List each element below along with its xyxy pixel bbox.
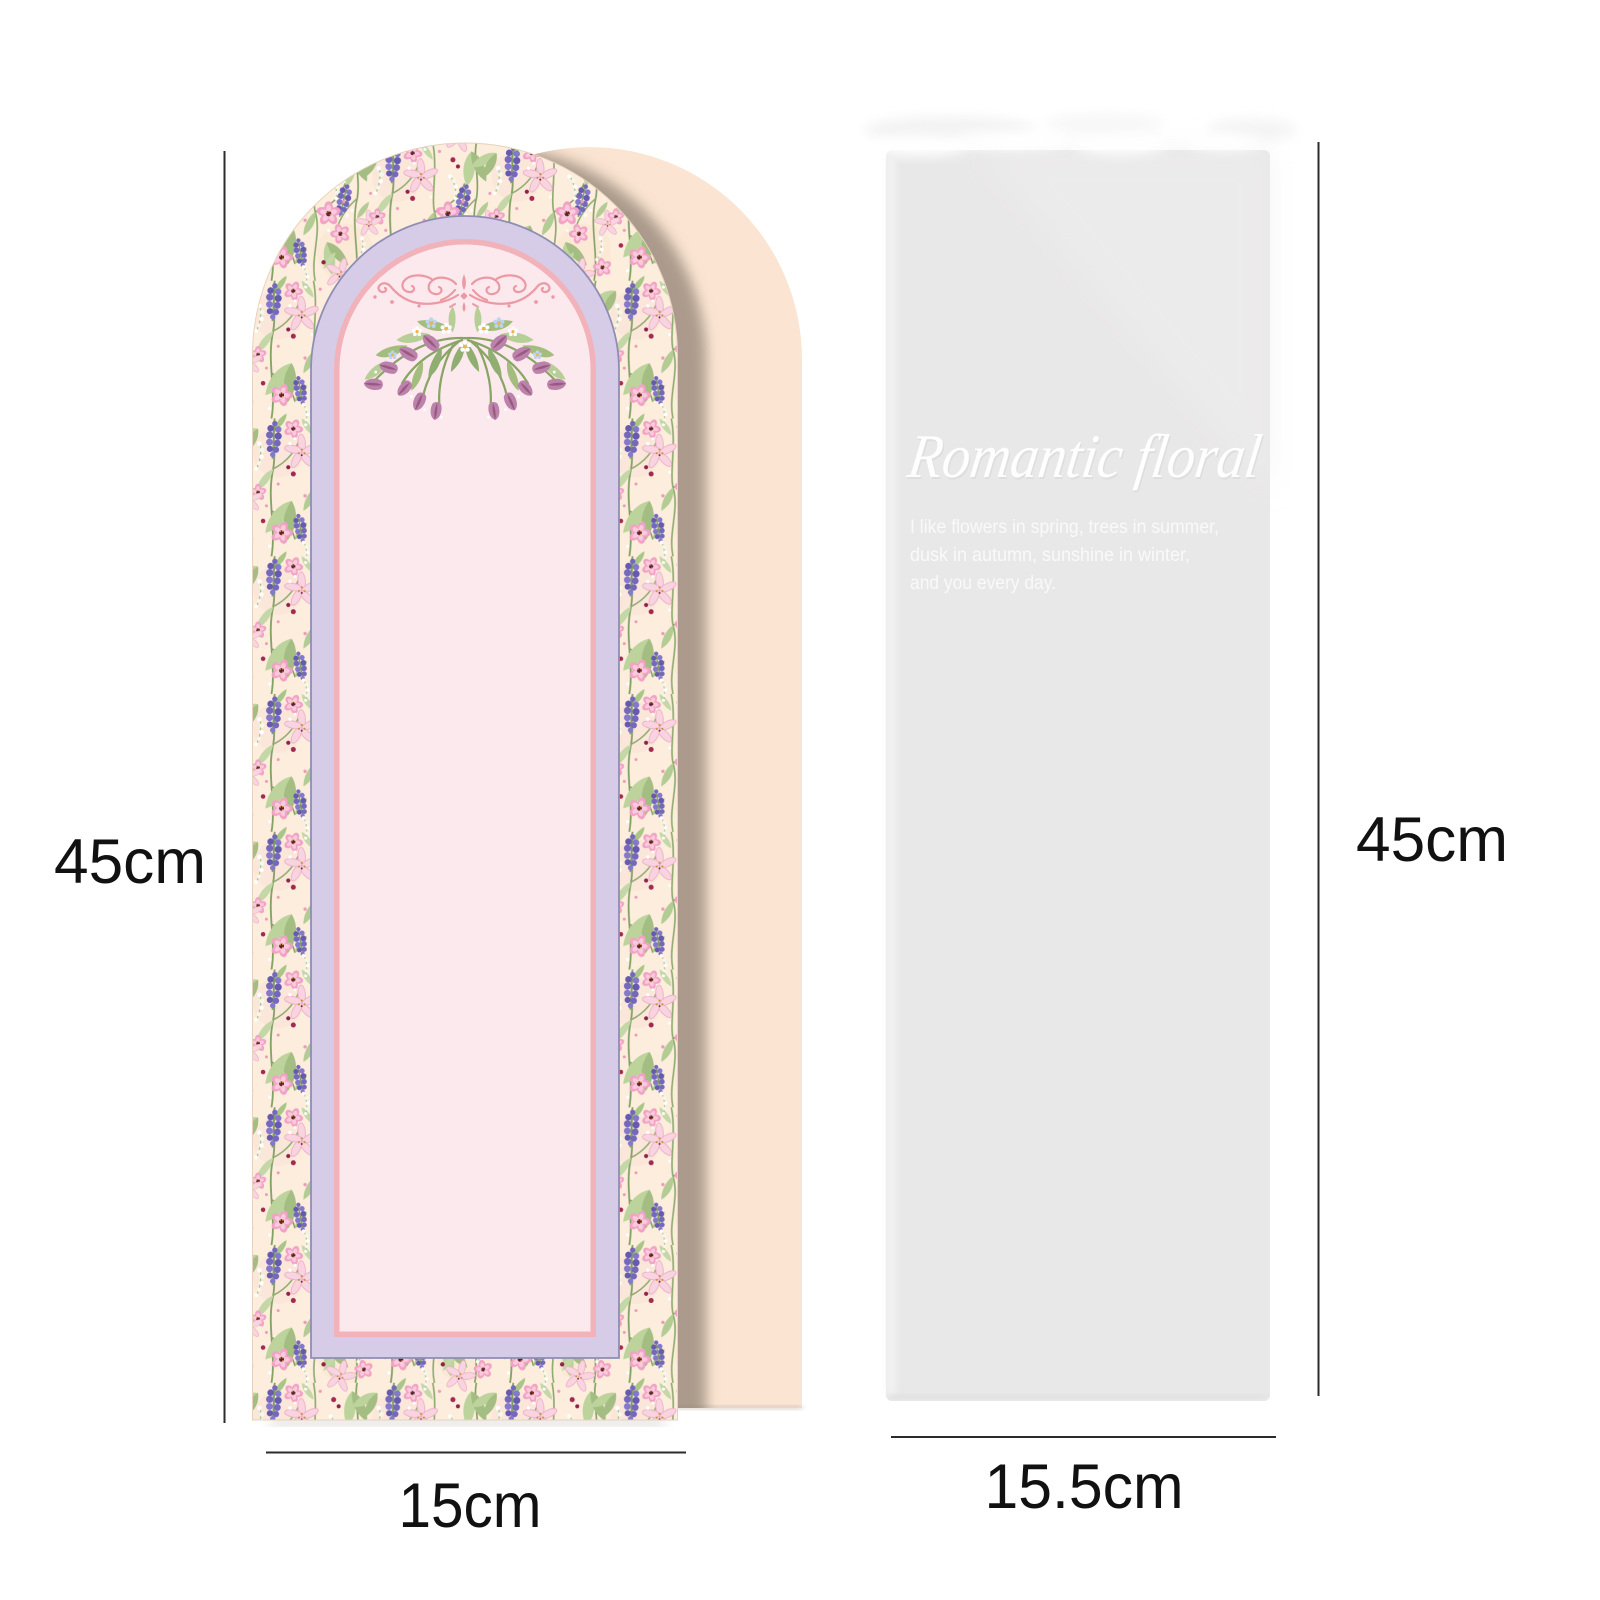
svg-text:15.5cm: 15.5cm	[985, 1452, 1184, 1522]
svg-text:15cm: 15cm	[399, 1471, 542, 1541]
svg-text:45cm: 45cm	[1356, 805, 1508, 875]
svg-text:Romantic floral: Romantic floral	[903, 422, 1266, 491]
svg-text:and you every day.: and you every day.	[910, 572, 1056, 594]
svg-text:45cm: 45cm	[54, 827, 206, 897]
svg-text:I like flowers in spring, tree: I like flowers in spring, trees in summe…	[910, 516, 1219, 538]
svg-text:dusk in autumn, sunshine in wi: dusk in autumn, sunshine in winter,	[910, 544, 1190, 566]
